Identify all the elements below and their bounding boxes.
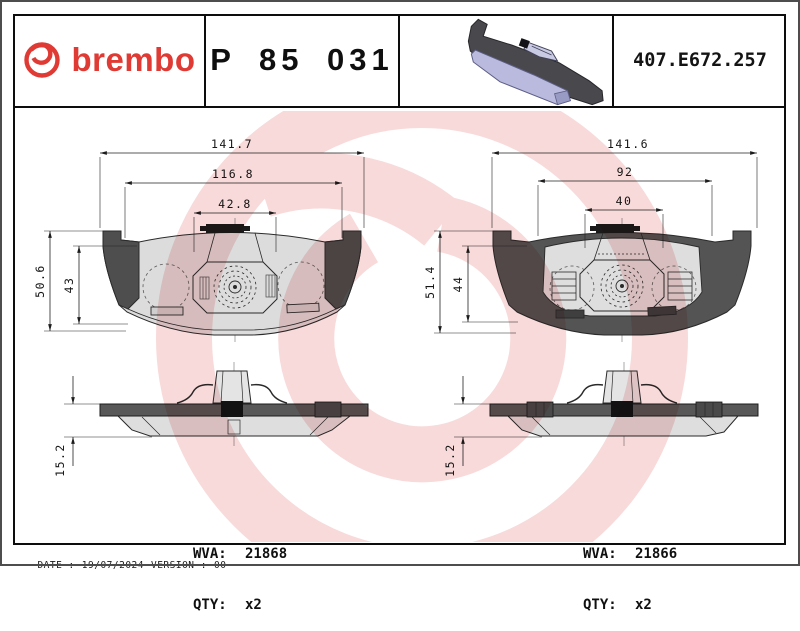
pad-3d-edge <box>555 91 571 105</box>
right-pad-part-info: WVA:21866 QTY:x2 <box>583 512 677 631</box>
qty-label: QTY: <box>583 597 635 614</box>
side-clip-wing-right <box>251 385 287 403</box>
right-pad-friction <box>543 238 702 316</box>
right-pad-side-view <box>490 362 758 446</box>
left-pad-bottom-tab-right <box>287 303 319 313</box>
right-pad-bottom-tab-left <box>556 310 584 318</box>
side-friction-right <box>508 416 738 436</box>
dim-left-width-3: 42.8 <box>218 197 252 211</box>
right-pad-top-tab <box>596 224 634 233</box>
dim-left-width-1: 141.7 <box>211 137 253 151</box>
dim-left-height-2: 43 <box>62 277 76 294</box>
part-number: P 85 031 <box>210 42 394 78</box>
dim-right-height-2: 44 <box>451 276 465 293</box>
left-pad-ear-right <box>325 231 361 309</box>
side-clip-tower-right <box>603 371 641 403</box>
left-pad-ear-left <box>103 231 139 309</box>
qty-value: x2 <box>635 597 652 613</box>
dim-left-thickness: 15.2 <box>53 443 67 477</box>
right-pad-front-view <box>493 218 751 342</box>
qty-value: x2 <box>245 597 262 613</box>
wva-number: 21866 <box>635 546 677 562</box>
dim-right-width-3: 40 <box>616 194 633 208</box>
dim-right-width-1: 141.6 <box>607 137 649 151</box>
qty-label: QTY: <box>193 597 245 614</box>
left-pad-side-view <box>100 362 368 446</box>
dim-left-height-1: 50.6 <box>33 264 47 298</box>
side-clip-wing-right <box>641 385 677 403</box>
title-block: brembo P 85 031 407.E672.257 <box>13 14 786 108</box>
left-pad-part-info: WVA:21868 QTY:x2 <box>193 512 287 631</box>
brand-wordmark: brembo <box>71 41 195 79</box>
brake-pad-3d <box>400 13 612 107</box>
catalog-code: 407.E672.257 <box>633 50 767 71</box>
side-clip-anchor-left <box>221 401 243 417</box>
side-clip-tower-left <box>213 371 251 403</box>
pad-3d-cell <box>400 14 614 106</box>
left-pad-outline <box>103 231 361 335</box>
dim-right-height-1: 51.4 <box>423 265 437 299</box>
brand-cell: brembo <box>13 14 206 106</box>
left-pad-top-tab <box>206 224 244 233</box>
part-number-cell: P 85 031 <box>206 14 400 106</box>
dim-right-width-2: 92 <box>617 165 634 179</box>
wva-number: 21868 <box>245 546 287 562</box>
right-pad-bottom-tab-right <box>648 306 676 315</box>
side-clip-wing-left <box>567 385 603 403</box>
catalog-code-cell: 407.E672.257 <box>614 14 786 106</box>
brembo-roundel-icon <box>21 39 63 81</box>
left-pad-front-view <box>103 218 361 342</box>
side-friction-left <box>118 416 350 436</box>
side-clip-anchor-right <box>611 401 633 417</box>
brembo-logo: brembo <box>21 39 195 81</box>
left-pad-bottom-tab-left <box>151 307 183 315</box>
date-version-line: DATE :19/07/2024VERSION :00 <box>25 549 233 571</box>
dim-right-thickness: 15.2 <box>443 443 457 477</box>
wva-label: WVA: <box>583 546 635 563</box>
dim-left-width-2: 116.8 <box>212 167 254 181</box>
side-clip-wing-left <box>177 385 213 403</box>
